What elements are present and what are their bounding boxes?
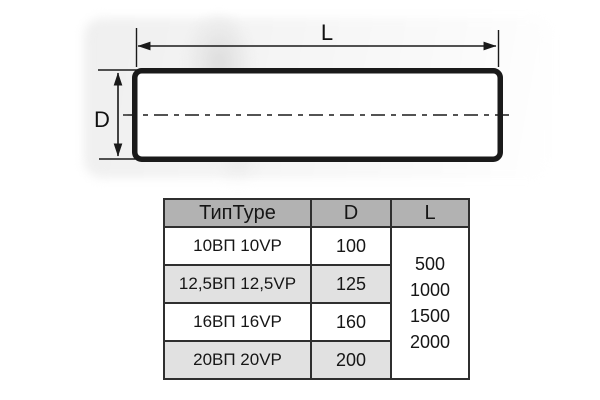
l-value: 1000 bbox=[392, 277, 468, 303]
l-value: 1500 bbox=[392, 303, 468, 329]
col-header-type: ТипType bbox=[164, 199, 311, 227]
type-cell: 20ВП 20VP bbox=[164, 341, 311, 379]
type-cell: 10ВП 10VP bbox=[164, 227, 311, 265]
l-values-cell: 500 1000 1500 2000 bbox=[391, 227, 469, 379]
spec-table: ТипType D L 10ВП 10VP 100 500 1000 1500 … bbox=[163, 198, 470, 380]
type-cell: 12,5ВП 12,5VP bbox=[164, 265, 311, 303]
l-value: 2000 bbox=[392, 329, 468, 355]
d-cell: 100 bbox=[311, 227, 391, 265]
table-row: 10ВП 10VP 100 500 1000 1500 2000 bbox=[164, 227, 469, 265]
col-header-d: D bbox=[311, 199, 391, 227]
length-label: L bbox=[321, 20, 333, 45]
l-value: 500 bbox=[392, 251, 468, 277]
d-cell: 125 bbox=[311, 265, 391, 303]
table-header-row: ТипType D L bbox=[164, 199, 469, 227]
diameter-label: D bbox=[94, 107, 110, 132]
d-cell: 160 bbox=[311, 303, 391, 341]
length-dimension: L bbox=[137, 20, 499, 67]
col-header-l: L bbox=[391, 199, 469, 227]
d-cell: 200 bbox=[311, 341, 391, 379]
page: L D ТипType D L 10ВП 10VP 100 bbox=[0, 0, 600, 400]
type-cell: 16ВП 16VP bbox=[164, 303, 311, 341]
